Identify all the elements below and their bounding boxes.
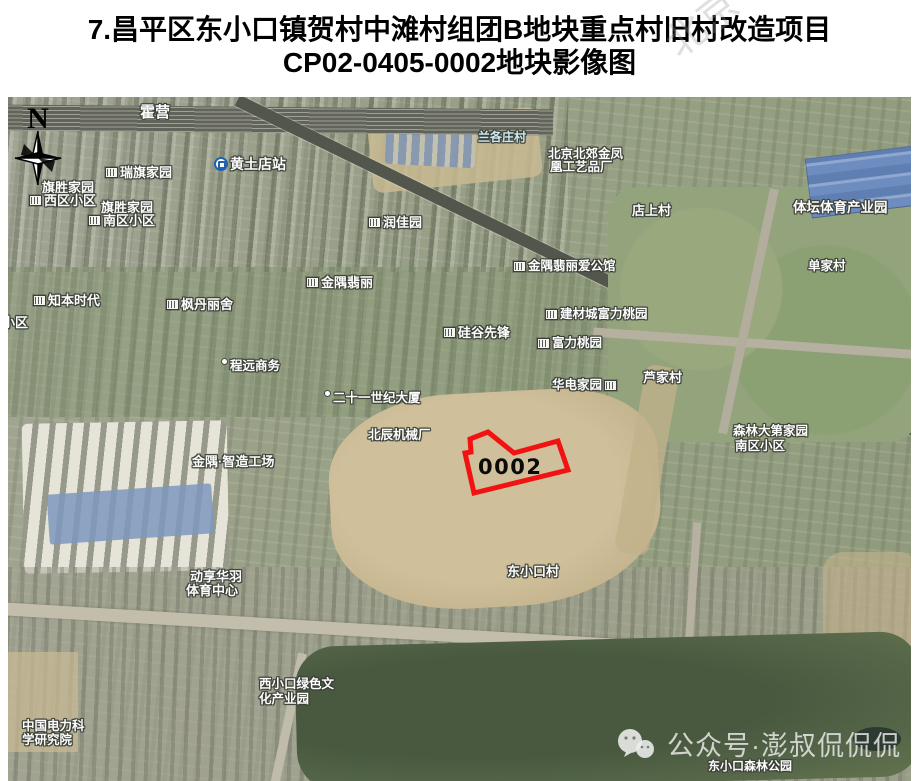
map-label: 金隅·智造工场	[192, 455, 274, 468]
map-label: 硅谷先锋	[443, 326, 510, 339]
map-label-text: 富力桃园	[552, 337, 602, 350]
map-label: 森林大第家园	[733, 425, 808, 438]
map-label-text: 华电家园	[552, 379, 602, 392]
map-label-text: 知本时代	[48, 294, 100, 307]
map-label-text: 店上村	[632, 204, 671, 217]
map-label: 小区	[8, 316, 28, 329]
map-label: 霍营	[140, 105, 170, 120]
map-label: 北京北郊金凤	[548, 148, 623, 161]
building-icon	[443, 327, 456, 338]
title-block: 7.昌平区东小口镇贺村中滩村组团B地块重点村旧村改造项目 CP02-0405-0…	[0, 0, 919, 97]
map-label-text: 西区小区	[44, 194, 96, 207]
map-label-text: 动享华羽	[190, 570, 242, 583]
map-label-text: 中国电力科	[22, 720, 85, 733]
map-label: 南区小区	[88, 214, 155, 227]
map-label-text: 东小口村	[507, 565, 559, 578]
building-icon	[166, 299, 179, 310]
map-label-text: 霍营	[140, 105, 170, 120]
map-label: 枫丹丽舍	[166, 298, 233, 311]
map-label: 店上村	[632, 204, 671, 217]
map-label-text: 金隅翡丽爱公馆	[528, 260, 616, 273]
map-label-text: 化产业园	[259, 693, 309, 706]
compass-n-letter: N	[27, 102, 49, 135]
map-label-text: 森林大第家园	[733, 425, 808, 438]
map-label: 二十一世纪大厦	[324, 392, 421, 405]
map-label: 中国电力科	[22, 720, 85, 733]
map-label-text: 体坛体育产业园	[793, 201, 888, 215]
map-label: 知本时代	[33, 294, 100, 307]
building-icon	[545, 309, 558, 320]
satellite-map: N 0002 霍营黄土店站瑞旗家园旗胜家园西区小区旗胜家园南区小区兰各庄村北京北…	[8, 97, 911, 781]
map-label-text: 润佳园	[383, 216, 422, 229]
map-label: 金隅翡丽	[306, 276, 373, 289]
map-label: 建材城富力桃园	[545, 308, 648, 321]
building-icon	[33, 295, 46, 306]
map-label-text: 兰各庄村	[478, 131, 526, 143]
map-label: 动享华羽	[190, 570, 242, 583]
map-label-text: 西小口绿色文	[259, 678, 334, 691]
map-label: 北辰机械厂	[368, 429, 431, 442]
compass-north-icon: N	[12, 101, 64, 189]
watermark-text: 公众号·澎叔侃侃侃	[667, 724, 901, 763]
page-title-line2: CP02-0405-0002地块影像图	[0, 46, 919, 79]
map-label: 金隅翡丽爱公馆	[513, 260, 616, 273]
map-label-text: 枫丹丽舍	[181, 298, 233, 311]
map-label: 学研究院	[22, 734, 72, 747]
map-label: 体坛体育产业园	[793, 201, 888, 215]
watermark: 公众号·澎叔侃侃侃	[616, 724, 901, 763]
map-label: 华电家园	[552, 379, 617, 392]
map-label-text: 小区	[8, 316, 28, 329]
map-label-text: 单家村	[808, 260, 846, 273]
map-label-text: 凰工艺品厂	[550, 161, 613, 174]
wechat-icon	[616, 728, 658, 760]
map-label-text: 北京北郊金凤	[548, 148, 623, 161]
map-label-text: 体育中心	[186, 584, 238, 597]
map-label-text: 北辰机械厂	[368, 429, 431, 442]
building-icon	[368, 217, 381, 228]
building-icon	[88, 215, 101, 226]
building-icon	[513, 261, 526, 272]
map-label: 西小口绿色文	[259, 678, 334, 691]
map-label-text: 建材城富力桃园	[560, 308, 648, 321]
map-label-text: 金隅翡丽	[321, 276, 373, 289]
map-label: 兰各庄村	[478, 131, 526, 143]
building-icon	[29, 195, 42, 206]
map-label: 黄土店站	[214, 157, 286, 171]
map-label-text: 金隅·智造工场	[192, 455, 274, 468]
map-label-text: 学研究院	[22, 734, 72, 747]
map-label-text: 芦家村	[643, 371, 682, 384]
page-title-line1: 7.昌平区东小口镇贺村中滩村组团B地块重点村旧村改造项目	[0, 0, 919, 46]
map-label: 西区小区	[29, 194, 96, 207]
building-icon	[105, 167, 118, 178]
page: { "header": { "title_line1": "7.昌平区东小口镇贺…	[0, 0, 919, 781]
building-icon	[306, 277, 319, 288]
map-label: 程远商务	[221, 360, 280, 373]
map-label-text: 程远商务	[230, 360, 280, 373]
map-label: 富力桃园	[537, 337, 602, 350]
map-label: 东小口村	[507, 565, 559, 578]
map-label: 单家村	[808, 260, 846, 273]
map-label-text: 黄土店站	[230, 157, 286, 171]
map-label-text: 南区小区	[103, 214, 155, 227]
parcel-code-label: 0002	[478, 455, 542, 479]
map-label: 芦家村	[643, 371, 682, 384]
map-label: 南区小区	[735, 440, 785, 453]
map-label-text: 瑞旗家园	[120, 166, 172, 179]
map-label: 润佳园	[368, 216, 422, 229]
map-label-text: 二十一世纪大厦	[333, 392, 421, 405]
building-icon	[537, 338, 550, 349]
map-label-text: 南区小区	[735, 440, 785, 453]
pin-icon	[221, 358, 228, 365]
map-label: 凰工艺品厂	[550, 161, 613, 174]
map-label-text: 硅谷先锋	[458, 326, 510, 339]
map-label: 化产业园	[259, 693, 309, 706]
building-icon	[604, 380, 617, 391]
pin-icon	[324, 390, 331, 397]
map-label: 瑞旗家园	[105, 166, 172, 179]
subway-icon	[214, 157, 228, 171]
map-label: 体育中心	[186, 584, 238, 597]
